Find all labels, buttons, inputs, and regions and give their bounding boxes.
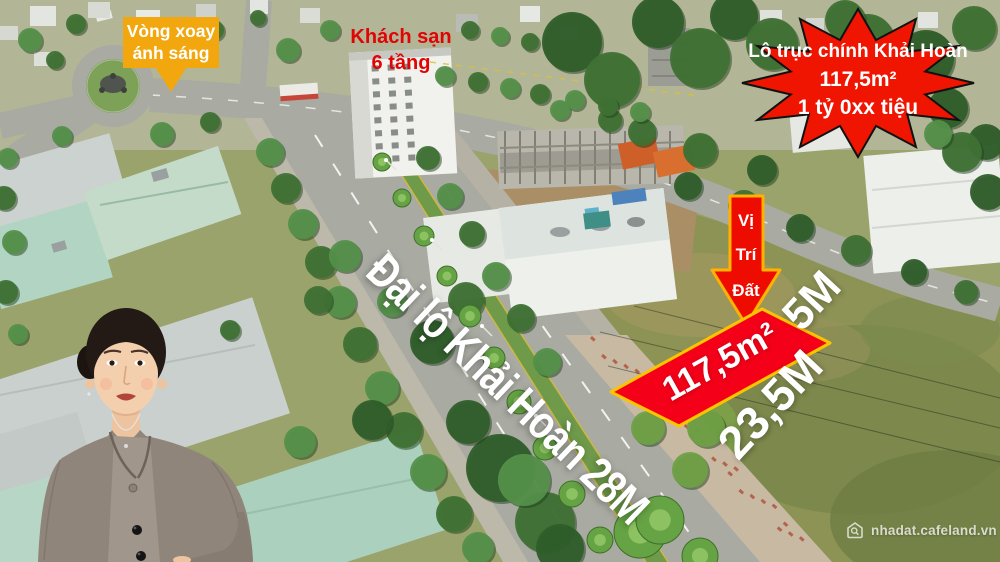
watermark: nhadat.cafeland.vn — [845, 520, 997, 540]
hotel-label-line1: Khách sạn — [348, 24, 454, 50]
price-starburst-text: Lô trục chính Khải Hoàn 117,5m² 1 tỷ 0xx… — [748, 38, 968, 122]
street-tents — [279, 83, 318, 102]
shed — [583, 210, 611, 229]
roundabout-label: Vòng xoay ánh sáng — [123, 17, 219, 68]
watermark-text: nhadat.cafeland.vn — [871, 523, 997, 538]
button — [136, 551, 146, 561]
button — [132, 525, 142, 535]
house-search-icon — [845, 520, 865, 540]
hotel-label-line2: 6 tầng — [348, 50, 454, 76]
real-estate-listing-photo: Đại lộ Khải Hoàn 28M Vòng xoay ánh sáng … — [0, 0, 1000, 562]
roundabout-label-line1: Vòng xoay — [123, 20, 219, 42]
eye — [109, 360, 114, 365]
starburst-line2: 117,5m² — [748, 66, 968, 94]
hotel-label: Khách sạn 6 tầng — [348, 24, 454, 76]
roundabout-label-line2: ánh sáng — [123, 42, 219, 64]
starburst-line3: 1 tỷ 0xx tiệu — [748, 94, 968, 122]
arrow-text-1: Vị — [738, 211, 754, 230]
eye — [137, 360, 142, 365]
arrow-text-2: Trí — [736, 245, 758, 264]
earring — [87, 392, 90, 395]
starburst-line1: Lô trục chính Khải Hoàn — [748, 38, 968, 66]
vest-button — [129, 484, 137, 492]
roundabout-pointer-icon — [154, 65, 188, 92]
